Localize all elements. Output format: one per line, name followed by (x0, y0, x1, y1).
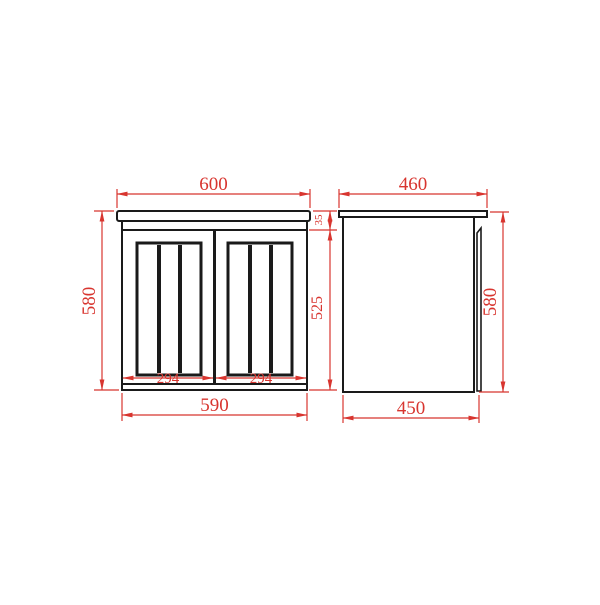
side-cabinet-body (343, 217, 474, 392)
label-top-thickness: 35 (313, 214, 325, 226)
label-right-door-width: 294 (250, 371, 273, 387)
front-countertop (117, 211, 310, 221)
label-side-bottom-depth: 450 (397, 398, 426, 419)
label-door-height: 525 (309, 296, 326, 320)
label-front-height: 580 (79, 287, 100, 316)
vanity-dimension-drawing: 600 580 35 525 294 294 590 460 580 450 (0, 0, 600, 600)
label-front-bottom-width: 590 (200, 395, 229, 416)
label-side-top-depth: 460 (399, 174, 428, 195)
drawing-canvas: 600 580 35 525 294 294 590 460 580 450 (0, 0, 600, 600)
label-left-door-width: 294 (157, 371, 180, 387)
label-side-height: 580 (480, 288, 501, 317)
side-view (339, 211, 487, 392)
label-front-top-width: 600 (199, 174, 228, 195)
front-view (117, 211, 310, 390)
